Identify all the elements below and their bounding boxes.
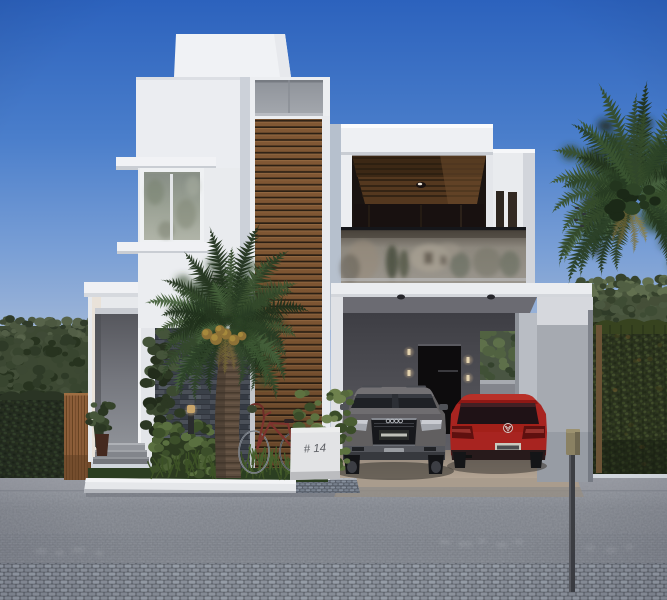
svg-text:# 14: # 14 (303, 442, 326, 455)
